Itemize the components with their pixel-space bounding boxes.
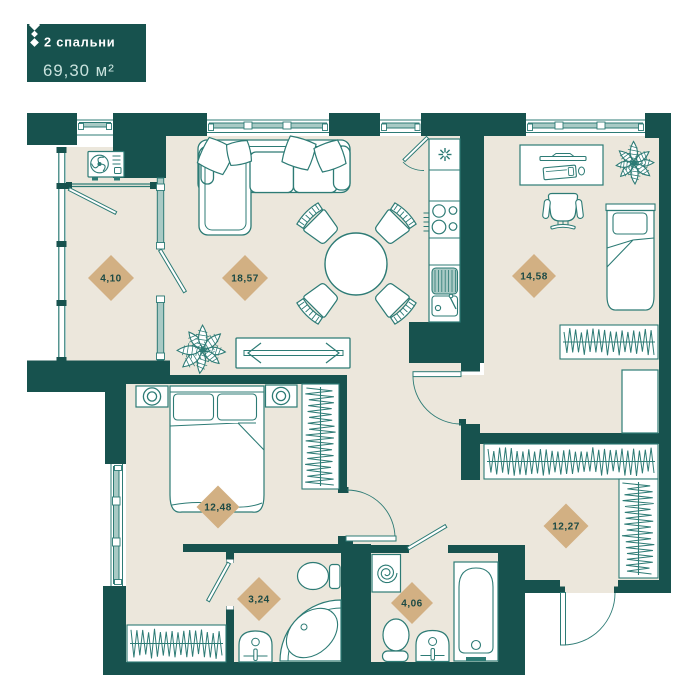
- svg-text:18,57: 18,57: [231, 274, 259, 285]
- svg-text:12,27: 12,27: [552, 522, 580, 533]
- svg-text:4,06: 4,06: [401, 599, 422, 610]
- svg-text:3,24: 3,24: [248, 595, 269, 606]
- svg-text:4,10: 4,10: [100, 274, 121, 285]
- svg-text:12,48: 12,48: [204, 503, 232, 514]
- svg-text:2 спальни: 2 спальни: [44, 35, 115, 50]
- svg-text:14,58: 14,58: [520, 272, 548, 283]
- svg-text:69,30 м²: 69,30 м²: [43, 61, 115, 80]
